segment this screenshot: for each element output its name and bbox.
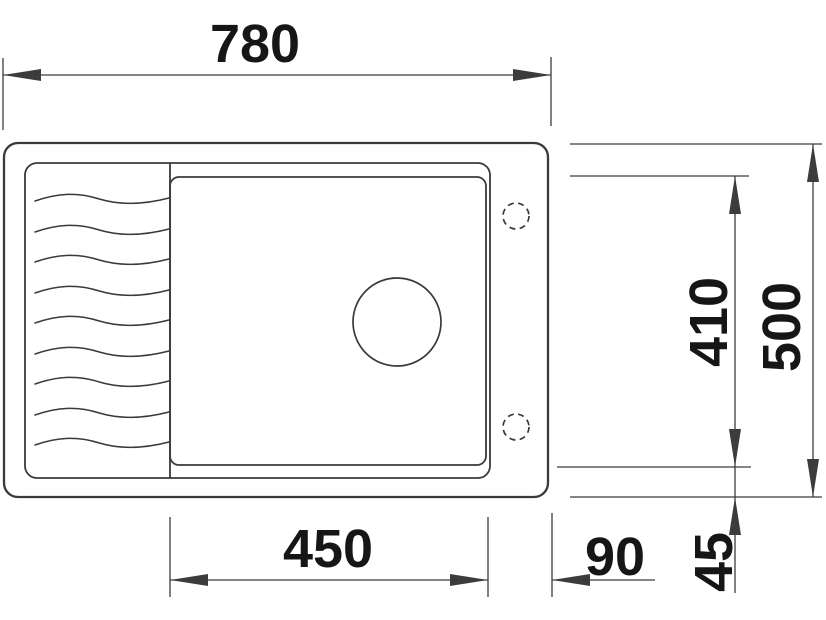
drainboard-wave-line	[35, 225, 169, 234]
dimensions-layer: 7805004104509045	[3, 14, 822, 597]
drain-hole	[353, 278, 441, 366]
dimension-arrowhead	[3, 69, 41, 81]
dimension-arrowhead	[170, 574, 208, 586]
drainboard-wave-line	[35, 377, 169, 386]
holes-layer	[353, 203, 529, 440]
drainboard-wave-line	[35, 194, 169, 203]
drainboard-wave-line	[35, 255, 169, 264]
dimension-780: 780	[3, 14, 551, 130]
dim-label-450: 450	[283, 519, 373, 579]
dim-label-45: 45	[684, 532, 744, 592]
drainboard-wave-line	[35, 316, 169, 325]
tap-hole-dashed	[503, 203, 529, 229]
basin-edge	[170, 177, 486, 465]
dimension-410: 410	[557, 176, 751, 467]
drainboard-wave-line	[35, 347, 169, 356]
dimension-arrowhead	[729, 176, 741, 214]
sink-technical-drawing: 7805004104509045	[0, 0, 826, 620]
dimension-arrowhead	[807, 459, 819, 497]
drainboard-wave-line	[35, 408, 169, 417]
dimension-arrowhead	[513, 69, 551, 81]
dim-label-500: 500	[752, 282, 812, 372]
sink-recess-edge	[25, 163, 490, 478]
dimension-90: 90	[552, 513, 655, 597]
dimension-arrowhead	[450, 574, 488, 586]
tap-hole-dashed	[503, 414, 529, 440]
drawing-svg: 7805004104509045	[0, 0, 826, 620]
dim-label-90: 90	[585, 527, 645, 587]
dimension-arrowhead	[729, 497, 741, 535]
drainboard-waves-layer	[35, 194, 169, 447]
dimension-45: 45	[684, 467, 744, 593]
dim-label-410: 410	[679, 277, 739, 367]
dim-label-780: 780	[210, 14, 300, 74]
drainboard-wave-line	[35, 286, 169, 295]
dimension-450: 450	[170, 517, 488, 597]
dimension-arrowhead	[729, 429, 741, 467]
drainboard-wave-line	[35, 438, 169, 447]
dimension-arrowhead	[807, 144, 819, 182]
